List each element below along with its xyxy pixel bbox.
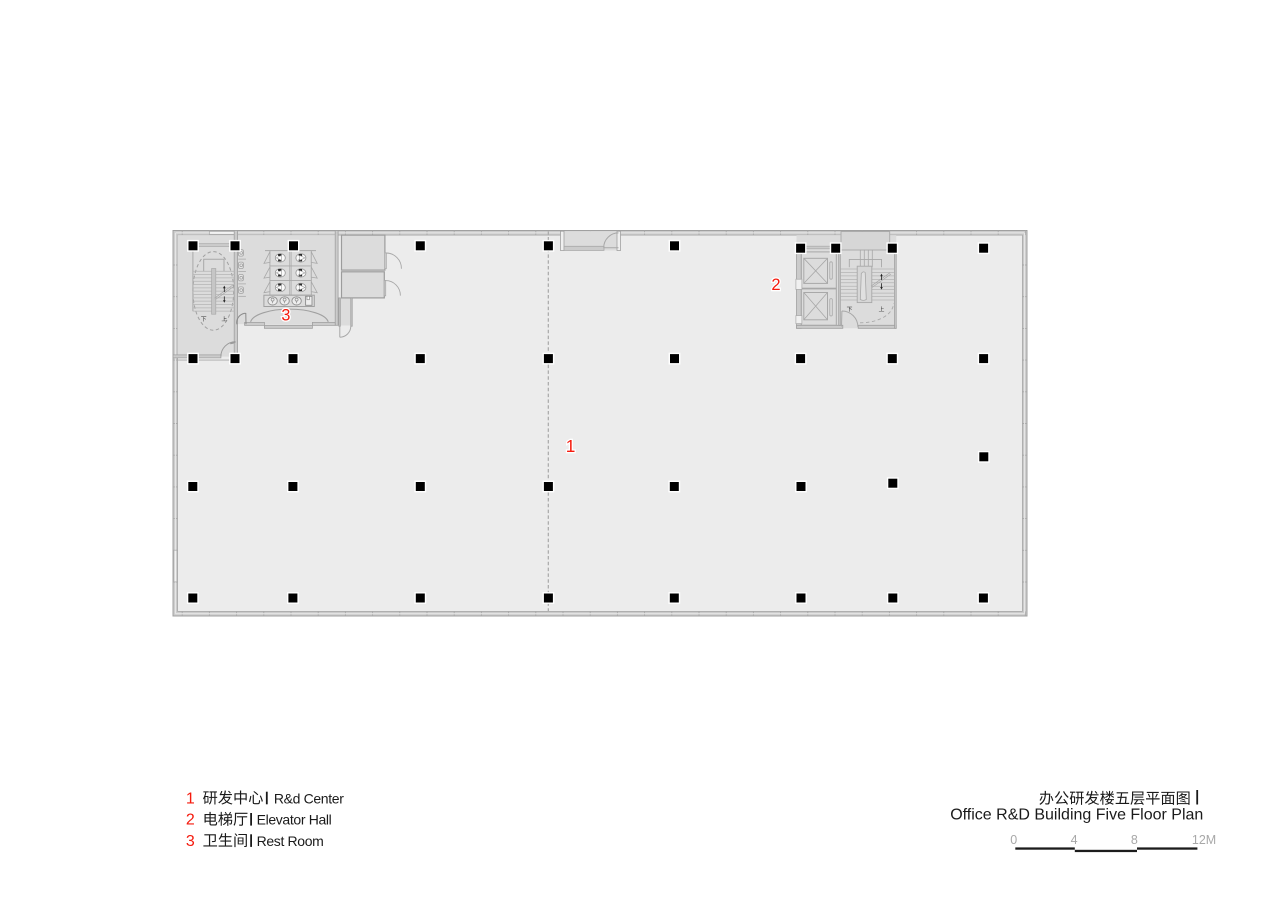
svg-text:Office R&D Building Five Floor: Office R&D Building Five Floor Plan <box>950 807 1203 824</box>
svg-text:2: 2 <box>186 812 195 829</box>
svg-text:1: 1 <box>186 790 195 807</box>
svg-text:Elevator Hall: Elevator Hall <box>257 812 332 828</box>
svg-text:1: 1 <box>566 436 576 456</box>
svg-text:4: 4 <box>1071 833 1078 847</box>
svg-text:2: 2 <box>771 276 780 294</box>
svg-text:R&d Center: R&d Center <box>274 790 344 806</box>
svg-text:Rest Room: Rest Room <box>257 833 324 849</box>
svg-text:0: 0 <box>1010 833 1017 847</box>
svg-text:8: 8 <box>1131 833 1138 847</box>
svg-text:12M: 12M <box>1192 833 1216 847</box>
svg-text:3: 3 <box>186 833 195 850</box>
svg-text:3: 3 <box>281 307 290 325</box>
